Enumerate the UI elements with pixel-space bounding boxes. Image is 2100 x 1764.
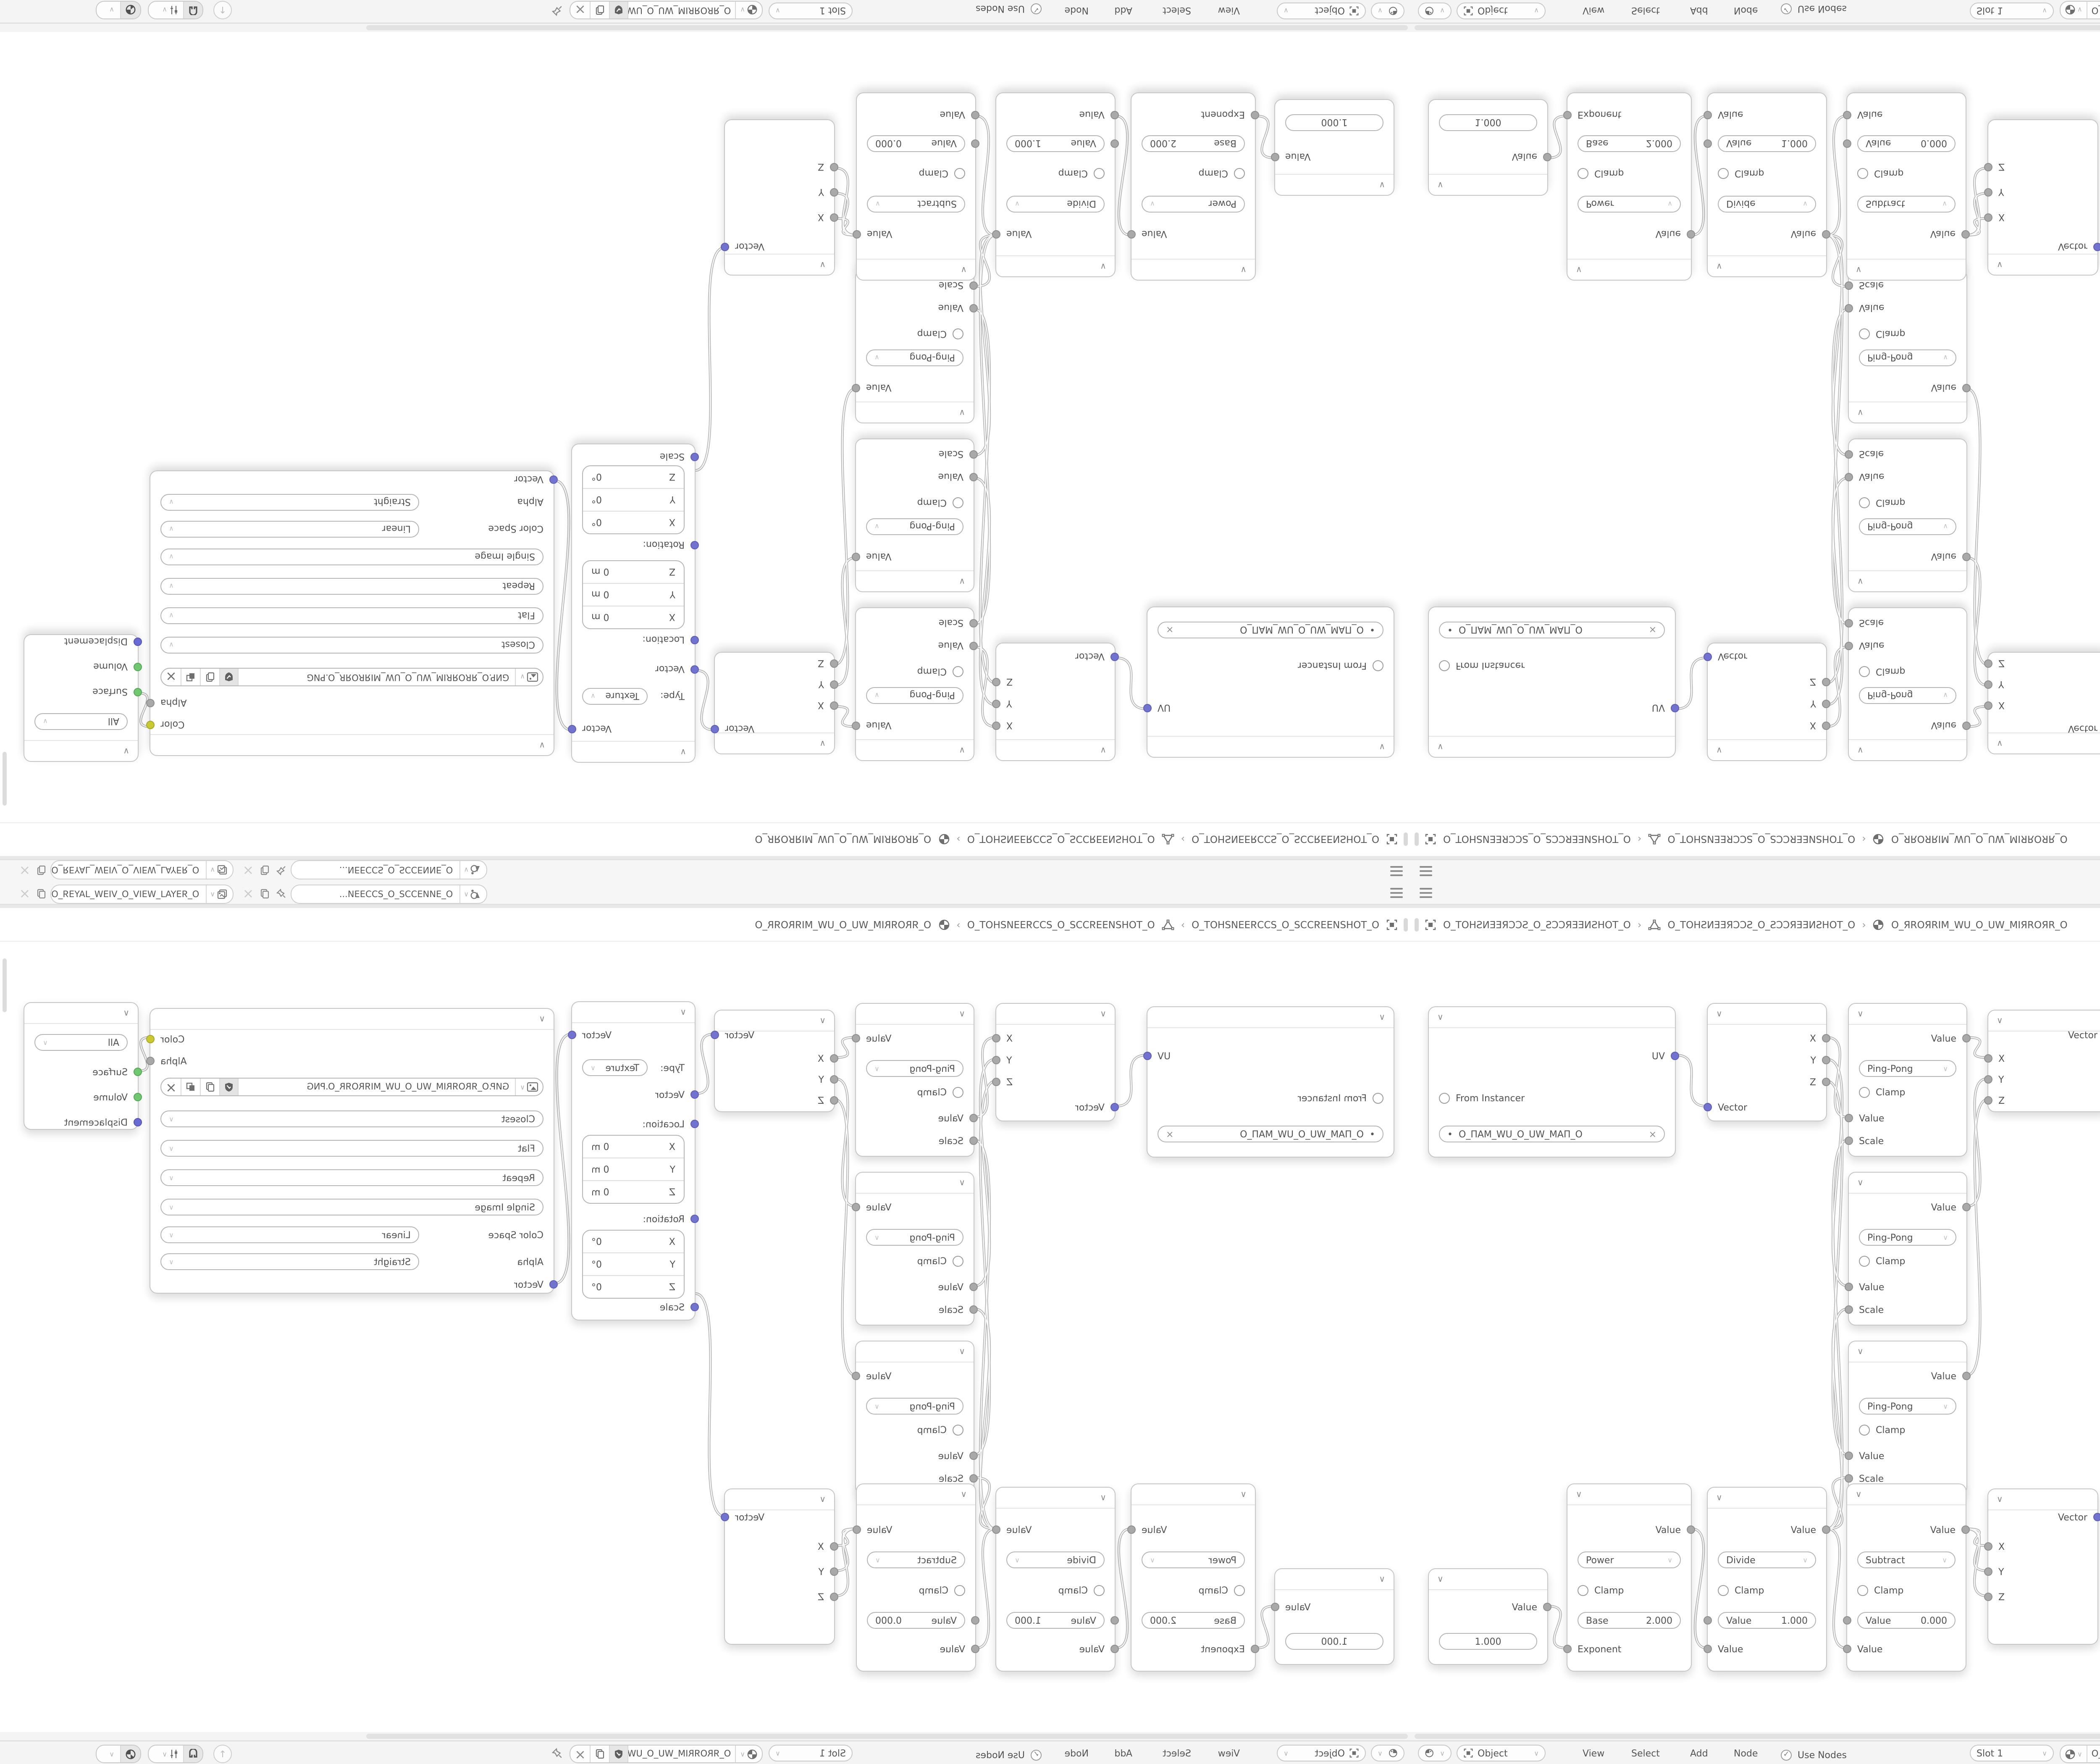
node-separate-xyz[interactable]: ∨ X Y Z Vector (1707, 1003, 1827, 1121)
socket-scale-input[interactable] (1845, 1137, 1853, 1145)
value-field[interactable]: Value0.000 (1857, 135, 1956, 152)
uv-map-name[interactable]: O_ПAM_WU_O_UW_MAП_O (1240, 1129, 1364, 1139)
node-combine-xyz-bottom[interactable]: ∨ Vector X Y Z (724, 119, 835, 276)
node-math-pingpong-3[interactable]: ∨ Value Ping-Pong∨ Clamp Value Scale (855, 270, 974, 423)
clamp-checkbox[interactable]: Clamp (917, 496, 963, 511)
pin-icon[interactable] (275, 864, 289, 878)
checkbox-icon[interactable] (953, 1255, 963, 1266)
copy-icon[interactable] (201, 669, 220, 685)
operation-dropdown[interactable]: Ping-Pong∨ (866, 1229, 963, 1246)
rotation-x-field[interactable]: X0° (583, 1231, 684, 1252)
interpolation-dropdown[interactable]: Closest∨ (160, 637, 543, 654)
clamp-checkbox[interactable]: Clamp (1859, 664, 1905, 680)
fake-user-shield-icon[interactable] (610, 2, 629, 18)
socket-value-output[interactable] (852, 553, 860, 561)
node-material-output[interactable]: ∨ All∨ Surface Volume Displacement (24, 1002, 139, 1130)
operation-dropdown[interactable]: Subtract∨ (867, 1551, 965, 1568)
slot-dropdown[interactable]: Slot 1 ∨ (769, 3, 853, 19)
node-math-pingpong-1[interactable]: ∨ Value Ping-Pong∨ Clamp Value Scale (855, 607, 974, 761)
rotation-xyz-fields[interactable]: X0° Y0° Z0° (582, 1230, 685, 1299)
rotation-x-field[interactable]: X0° (583, 512, 684, 533)
socket-value1-input[interactable] (1704, 1616, 1712, 1625)
alpha-mode-dropdown[interactable]: Straight∨ (160, 1253, 419, 1270)
horizontal-scrollbar-track[interactable] (0, 1732, 1411, 1740)
checkbox-icon[interactable] (1859, 1424, 1870, 1435)
menu-hamburger-icon[interactable] (1390, 888, 1403, 898)
node-math-power[interactable]: ∨ Value Power∨ Clamp Base2.000 Exponent (1567, 1483, 1692, 1672)
location-xyz-fields[interactable]: X0 m Y0 m Z0 m (582, 1135, 685, 1204)
checkbox-icon[interactable] (1578, 168, 1588, 179)
material-datablock-selector[interactable]: ∨ O_ЯROЯRIM_WU_O_UW_MIЯROЯR_O × (570, 1745, 763, 1763)
socket-z-input[interactable] (1984, 659, 1992, 668)
uv-map-name[interactable]: O_ПAM_WU_O_UW_MAП_O (1459, 1129, 1583, 1139)
node-math-divide[interactable]: ∨ Value Divide∨ Clamp Value1.000 Value (1707, 92, 1827, 277)
socket-scale-input[interactable] (1845, 1474, 1853, 1483)
node-collapse-toggle[interactable]: ∨ (1988, 254, 2097, 275)
socket-y-output[interactable] (992, 700, 1000, 708)
checkbox-icon[interactable] (1718, 1585, 1729, 1596)
base-field[interactable]: Base2.000 (1142, 1612, 1245, 1629)
socket-value2-input[interactable] (1843, 111, 1851, 119)
node-combine-xyz-top[interactable]: ∨ Vector X Y Z (1987, 1010, 2100, 1112)
source-dropdown[interactable]: Single Image∨ (160, 549, 543, 565)
clamp-checkbox[interactable]: Clamp (1199, 1583, 1245, 1598)
horizontal-scrollbar-track[interactable] (1411, 1732, 2100, 1740)
rotation-z-field[interactable]: Z0° (583, 466, 684, 489)
checkbox-icon[interactable] (1234, 1585, 1245, 1596)
socket-z-input[interactable] (1984, 1593, 1992, 1601)
socket-value1-input[interactable] (1110, 1616, 1119, 1625)
operation-dropdown[interactable]: Ping-Pong∨ (1859, 687, 1956, 704)
node-collapse-toggle[interactable]: ∨ (856, 402, 974, 423)
node-image-texture[interactable]: ∨ Color Alpha ∨ GИP.O_ЯROЯRIM_WU_O_UW_MI… (150, 470, 554, 756)
editor-type-dropdown[interactable]: ∨ (1371, 3, 1404, 19)
overlays-icon[interactable] (121, 1746, 140, 1762)
breadcrumb-mesh-name[interactable]: O_TOHƧИƎƎЯƆƆƧ_O_ƧƆƆЯƎƎИƧHOT_O (967, 833, 1155, 845)
menu-select[interactable]: Select (1626, 1741, 1665, 1764)
copy-icon[interactable] (34, 864, 49, 878)
socket-value2-input[interactable] (1110, 111, 1119, 119)
operation-dropdown[interactable]: Power∨ (1142, 196, 1245, 213)
socket-y-output[interactable] (1822, 1056, 1830, 1064)
socket-z-input[interactable] (830, 1096, 838, 1105)
socket-rotation-input[interactable] (690, 541, 699, 549)
checkbox-icon[interactable] (1859, 498, 1870, 509)
socket-value-input[interactable] (1845, 1452, 1853, 1460)
socket-value-output[interactable] (1962, 553, 1971, 561)
socket-vector-output[interactable] (711, 725, 719, 733)
clamp-checkbox[interactable]: Clamp (1718, 166, 1764, 181)
socket-value-output[interactable] (1127, 1525, 1136, 1534)
menu-view[interactable]: View (1578, 1741, 1609, 1764)
slot-dropdown[interactable]: Slot 1 ∨ (1970, 3, 2054, 19)
checkbox-icon[interactable]: ✓ (1781, 4, 1792, 15)
socket-value-output[interactable] (1962, 722, 1971, 730)
horizontal-scrollbar[interactable] (1415, 25, 2100, 30)
scene-selector[interactable]: ∨ O_ƎИИƎƆƆƧ_O_ƧƆƆƎƎИ... (291, 885, 487, 904)
node-math-pingpong-3[interactable]: ∨ Value Ping-Pong∨ Clamp Value Scale (1848, 270, 1967, 423)
scene-icon[interactable]: ∨ (459, 885, 486, 903)
checkbox-icon[interactable] (953, 329, 963, 340)
horizontal-scrollbar[interactable] (366, 25, 1408, 30)
value-field[interactable]: Value1.000 (1006, 135, 1105, 152)
socket-y-input[interactable] (830, 680, 838, 689)
socket-value-output[interactable] (1961, 230, 1970, 239)
use-nodes-checkbox[interactable]: ✓ Use Nodes (1781, 1747, 1847, 1762)
node-collapse-toggle[interactable]: ∨ (1131, 1484, 1255, 1505)
clamp-checkbox[interactable]: Clamp (1058, 1583, 1105, 1598)
breadcrumb-mesh-name[interactable]: O_TOHƧИƎƎЯƆƆƧ_O_ƧƆƆЯƎƎИƧHOT_O (1667, 833, 1855, 845)
material-datablock-selector[interactable]: ∨ O_ЯROЯRIM_WU_O_UW_MIЯROЯR_O × (2060, 1745, 2100, 1763)
overlays-dropdown[interactable]: ∨ (105, 1746, 121, 1762)
node-collapse-toggle[interactable]: ∨ (856, 1004, 974, 1025)
fake-user-shield-icon[interactable] (610, 1746, 629, 1762)
color-space-dropdown[interactable]: Linear∨ (160, 521, 419, 538)
material-name[interactable]: O_ЯROЯRIM_WU_O_UW_MIЯROЯR_O (629, 2, 736, 18)
socket-alpha-output[interactable] (146, 1057, 155, 1065)
node-combine-xyz-top[interactable]: ∨ Vector X Y Z (1987, 652, 2100, 754)
use-nodes-checkbox[interactable]: ✓ Use Nodes (1781, 2, 1847, 17)
node-math-divide[interactable]: ∨ Value Divide∨ Clamp Value1.000 Value (995, 1487, 1116, 1672)
type-dropdown[interactable]: Texture∨ (582, 1059, 648, 1076)
checkbox-icon[interactable] (954, 168, 965, 179)
from-instancer-checkbox[interactable]: From Instancer (1298, 659, 1383, 674)
node-collapse-toggle[interactable]: ∨ (572, 1002, 695, 1023)
socket-x-input[interactable] (1984, 1542, 1992, 1551)
socket-value-output[interactable] (1271, 153, 1279, 161)
go-up-button[interactable]: ↑ (213, 1, 232, 19)
operation-dropdown[interactable]: Subtract∨ (1857, 1551, 1956, 1568)
checkbox-icon[interactable] (1234, 168, 1245, 179)
node-uv-map[interactable]: ∨ UV From Instancer • O_ПAM_WU_O_UW_MAП_… (1428, 606, 1676, 758)
checkbox-icon[interactable]: ✓ (1781, 1749, 1792, 1760)
operation-dropdown[interactable]: Ping-Pong∨ (866, 687, 963, 704)
socket-vector-input[interactable] (1704, 653, 1712, 661)
pin-icon[interactable] (275, 886, 289, 900)
rotation-y-field[interactable]: Y0° (583, 489, 684, 512)
copy-icon[interactable] (201, 1079, 220, 1095)
from-instancer-checkbox[interactable]: From Instancer (1439, 659, 1525, 674)
node-math-power[interactable]: ∨ Value Power∨ Clamp Base2.000 Exponent (1131, 1483, 1256, 1672)
socket-exponent-input[interactable] (1251, 111, 1259, 119)
node-combine-xyz-top[interactable]: ∨ Vector X Y Z (714, 652, 835, 754)
socket-z-output[interactable] (1822, 1078, 1830, 1086)
checkbox-icon[interactable]: ✓ (1031, 4, 1042, 15)
checkbox-icon[interactable] (1373, 661, 1383, 672)
socket-y-input[interactable] (830, 1075, 838, 1084)
location-xyz-fields[interactable]: X0 m Y0 m Z0 m (582, 560, 685, 629)
fake-user-shield-icon[interactable] (220, 669, 239, 685)
socket-value2-input[interactable] (1704, 1645, 1712, 1653)
extension-dropdown[interactable]: Repeat∨ (160, 1169, 543, 1186)
socket-displacement-input[interactable] (134, 1118, 142, 1126)
socket-value-input[interactable] (969, 1114, 978, 1122)
unlink-icon[interactable]: × (241, 864, 255, 878)
operation-dropdown[interactable]: Ping-Pong∨ (866, 518, 963, 535)
node-collapse-toggle[interactable]: ∨ (1849, 402, 1966, 423)
horizontal-scrollbar-track[interactable] (1411, 24, 2100, 32)
material-datablock-selector[interactable]: ∨ O_ЯROЯRIM_WU_O_UW_MIЯROЯR_O × (570, 1, 763, 19)
scroll-pill[interactable] (1415, 918, 1419, 932)
image-filename[interactable]: GИP.O_ЯROЯRIM_WU_O_UW_MIЯROЯR_O.PNG (239, 1079, 516, 1095)
node-editor-canvas[interactable]: ∨ UV From Instancer • O_ПAM_WU_O_UW_MAП_… (0, 942, 1411, 1732)
socket-scale-input[interactable] (969, 1137, 978, 1145)
socket-exponent-input[interactable] (1563, 111, 1572, 119)
socket-value2-input[interactable] (1110, 1645, 1119, 1653)
node-uv-map[interactable]: ∨ UV From Instancer • O_ПAM_WU_O_UW_MAП_… (1147, 606, 1394, 758)
node-collapse-toggle[interactable]: ∨ (996, 739, 1115, 760)
checkbox-icon[interactable] (1859, 667, 1870, 677)
socket-value-output[interactable] (852, 1034, 860, 1042)
node-math-subtract[interactable]: ∨ Value Subtract∨ Clamp Value0.000 Value (856, 1483, 976, 1672)
operation-dropdown[interactable]: Power∨ (1142, 1551, 1245, 1568)
clamp-checkbox[interactable]: Clamp (919, 166, 965, 181)
node-collapse-toggle[interactable]: ∨ (1429, 174, 1547, 195)
socket-x-input[interactable] (1984, 213, 1992, 222)
checkbox-icon[interactable] (1859, 1087, 1870, 1097)
node-collapse-toggle[interactable]: ∨ (1849, 570, 1966, 591)
socket-z-output[interactable] (1822, 678, 1830, 686)
node-separate-xyz[interactable]: ∨ X Y Z Vector (995, 1003, 1116, 1121)
checkbox-icon[interactable] (1578, 1585, 1588, 1596)
socket-scale-input[interactable] (969, 619, 978, 627)
menu-select[interactable]: Select (1626, 0, 1665, 23)
node-math-subtract[interactable]: ∨ Value Subtract∨ Clamp Value0.000 Value (856, 92, 976, 281)
menu-node[interactable]: Node (1729, 1741, 1763, 1764)
node-separate-xyz[interactable]: ∨ X Y Z Vector (995, 643, 1116, 761)
horizontal-scrollbar[interactable] (366, 1734, 1408, 1739)
uv-map-name-field[interactable]: • O_ПAM_WU_O_UW_MAП_O × (1439, 622, 1665, 638)
value-field[interactable]: Value1.000 (1718, 135, 1816, 152)
socket-y-input[interactable] (1984, 188, 1992, 197)
clamp-checkbox[interactable]: Clamp (1578, 1583, 1624, 1598)
socket-scale-input[interactable] (1845, 619, 1853, 627)
socket-value-output[interactable] (1962, 1034, 1971, 1042)
node-math-pingpong-3[interactable]: ∨ Value Ping-Pong∨ Clamp Value Scale (855, 1341, 974, 1494)
interpolation-dropdown[interactable]: Closest∨ (160, 1110, 543, 1127)
checkbox-icon[interactable] (1439, 1092, 1450, 1103)
material-browse-icon[interactable]: ∨ (2061, 1746, 2087, 1762)
material-browse-icon[interactable]: ∨ (736, 1746, 762, 1762)
overlays-icon[interactable] (121, 2, 140, 18)
location-x-field[interactable]: X0 m (583, 606, 684, 628)
clamp-checkbox[interactable]: Clamp (917, 664, 963, 680)
location-y-field[interactable]: Y0 m (583, 1158, 684, 1180)
menu-node[interactable]: Node (1060, 1741, 1094, 1764)
operation-dropdown[interactable]: Power∨ (1578, 196, 1681, 213)
node-collapse-toggle[interactable]: ∨ (24, 740, 138, 761)
operation-dropdown[interactable]: Ping-Pong∨ (866, 1060, 963, 1077)
breadcrumb-material-name[interactable]: O_ЯROЯRIM_WU_O_UW_MIЯROЯR_O (1891, 833, 2068, 845)
socket-exponent-input[interactable] (1251, 1645, 1259, 1653)
checkbox-icon[interactable] (1859, 329, 1870, 340)
slot-dropdown[interactable]: Slot 1 ∨ (769, 1745, 853, 1761)
socket-vector-output[interactable] (2093, 1513, 2100, 1521)
menu-node[interactable]: Node (1060, 0, 1094, 23)
unlink-icon[interactable]: × (570, 1746, 591, 1762)
overlays-controls[interactable]: ∨ (96, 1, 141, 19)
image-browse-icon[interactable]: ∨ (516, 669, 543, 685)
socket-value-output[interactable] (852, 722, 860, 730)
clamp-checkbox[interactable]: Clamp (917, 1084, 963, 1100)
checkbox-icon[interactable] (953, 1087, 963, 1097)
socket-volume-input[interactable] (134, 1093, 142, 1101)
socket-x-input[interactable] (830, 1054, 838, 1063)
rotation-y-field[interactable]: Y0° (583, 1252, 684, 1275)
snap-settings-icon[interactable]: ∨ (158, 2, 184, 18)
socket-value-output[interactable] (853, 230, 861, 239)
unlink-icon[interactable]: × (18, 886, 32, 900)
node-math-divide[interactable]: ∨ Value Divide∨ Clamp Value1.000 Value (1707, 1487, 1827, 1672)
view-layer-icon[interactable]: ∨ (206, 861, 233, 879)
node-combine-xyz-top[interactable]: ∨ Vector X Y Z (714, 1010, 835, 1112)
operation-dropdown[interactable]: Ping-Pong∨ (866, 1398, 963, 1415)
shader-type-dropdown[interactable]: Object ∨ (1457, 3, 1546, 19)
checkbox-icon[interactable] (1094, 1585, 1105, 1596)
snap-controls[interactable]: ∨ (148, 1745, 203, 1763)
socket-value-output[interactable] (1543, 1603, 1551, 1611)
material-name[interactable]: O_ЯROЯRIM_WU_O_UW_MIЯROЯR_O (629, 1746, 736, 1762)
operation-dropdown[interactable]: Ping-Pong∨ (1859, 518, 1956, 535)
operation-dropdown[interactable]: Subtract∨ (867, 196, 965, 213)
clamp-checkbox[interactable]: Clamp (917, 327, 963, 342)
socket-value-input[interactable] (1845, 642, 1853, 650)
node-math-power[interactable]: ∨ Value Power∨ Clamp Base2.000 Exponent (1567, 92, 1692, 281)
socket-value-input[interactable] (1845, 473, 1853, 481)
node-math-pingpong-2[interactable]: ∨ Value Ping-Pong∨ Clamp Value Scale (855, 1172, 974, 1326)
socket-value2-input[interactable] (1843, 1645, 1851, 1653)
clamp-checkbox[interactable]: Clamp (1578, 166, 1624, 181)
node-mapping[interactable]: ∨ Vector Type: Texture∨ Vector Location:… (571, 1001, 696, 1320)
socket-vector-input[interactable] (690, 1090, 699, 1099)
unlink-icon[interactable]: × (18, 864, 32, 878)
checkbox-icon[interactable] (953, 1424, 963, 1435)
node-collapse-toggle[interactable]: ∨ (857, 259, 975, 280)
socket-x-input[interactable] (1984, 1054, 1992, 1063)
from-instancer-checkbox[interactable]: From Instancer (1298, 1090, 1383, 1105)
checkbox-icon[interactable]: ✓ (1031, 1749, 1042, 1760)
material-datablock-selector[interactable]: ∨ O_ЯROЯRIM_WU_O_UW_MIЯROЯR_O × (2060, 1, 2100, 19)
menu-node[interactable]: Node (1729, 0, 1763, 23)
socket-value-input[interactable] (969, 304, 978, 312)
node-collapse-toggle[interactable]: ∨ (1849, 1341, 1966, 1362)
socket-value2-input[interactable] (971, 1645, 979, 1653)
overlays-controls[interactable]: ∨ (96, 1745, 141, 1763)
socket-x-output[interactable] (1822, 1034, 1830, 1042)
socket-vector-output[interactable] (711, 1031, 719, 1039)
socket-value-input[interactable] (969, 1452, 978, 1460)
from-instancer-checkbox[interactable]: From Instancer (1439, 1090, 1525, 1105)
node-math-subtract[interactable]: ∨ Value Subtract∨ Clamp Value0.000 Value (1846, 1483, 1966, 1672)
checkbox-icon[interactable] (954, 1585, 965, 1596)
socket-value1-input[interactable] (1110, 139, 1119, 148)
operation-dropdown[interactable]: Ping-Pong∨ (1859, 349, 1956, 366)
socket-vector-input[interactable] (1110, 653, 1119, 661)
node-collapse-toggle[interactable]: ∨ (1849, 739, 1966, 760)
socket-scale-input[interactable] (969, 1474, 978, 1483)
socket-value-input[interactable] (969, 1283, 978, 1291)
clamp-checkbox[interactable]: Clamp (1859, 1253, 1905, 1268)
socket-y-input[interactable] (1984, 680, 1992, 689)
view-layer-selector[interactable]: ∨ O_ЯƎYA⅃_WƎIV_O_VIƎW_⅃AYƎЯ_O (50, 885, 234, 904)
checkbox-icon[interactable] (953, 667, 963, 677)
socket-x-output[interactable] (1822, 722, 1830, 730)
snap-magnet-icon[interactable] (184, 1746, 202, 1762)
socket-surface-input[interactable] (134, 688, 142, 696)
alpha-mode-dropdown[interactable]: Straight∨ (160, 494, 419, 511)
breadcrumb-material-name[interactable]: O_ЯROЯRIM_WU_O_UW_MIЯROЯR_O (755, 919, 931, 931)
node-math-pingpong-2[interactable]: ∨ Value Ping-Pong∨ Clamp Value Scale (1848, 438, 1967, 592)
value-field[interactable]: Value0.000 (867, 135, 965, 152)
menu-view[interactable]: View (1213, 1741, 1245, 1764)
checkbox-icon[interactable] (1094, 168, 1105, 179)
clear-icon[interactable]: × (1166, 1129, 1173, 1139)
unlink-icon[interactable]: × (161, 669, 182, 685)
pin-icon[interactable] (550, 1746, 564, 1761)
socket-z-input[interactable] (1984, 163, 1992, 171)
node-combine-xyz-bottom[interactable]: ∨ Vector X Y Z (1987, 119, 2098, 276)
copy-icon[interactable] (591, 1746, 610, 1762)
clamp-checkbox[interactable]: Clamp (1859, 1084, 1905, 1100)
checkbox-icon[interactable] (1859, 1255, 1870, 1266)
node-math-divide[interactable]: ∨ Value Divide∨ Clamp Value1.000 Value (995, 92, 1116, 277)
node-value[interactable]: ∨ Value 1.000 (1274, 1568, 1394, 1665)
socket-value-input[interactable] (1845, 304, 1853, 312)
node-math-pingpong-1[interactable]: ∨ Value Ping-Pong∨ Clamp Value Scale (855, 1003, 974, 1157)
node-collapse-toggle[interactable]: ∨ (1275, 174, 1394, 195)
checkbox-icon[interactable] (1718, 168, 1729, 179)
operation-dropdown[interactable]: Power∨ (1578, 1551, 1681, 1568)
operation-dropdown[interactable]: Divide∨ (1718, 1551, 1816, 1568)
socket-vector-input[interactable] (1110, 1103, 1119, 1111)
node-collapse-toggle[interactable]: ∨ (1275, 1569, 1394, 1590)
socket-location-input[interactable] (690, 1120, 699, 1128)
copy-icon[interactable] (258, 886, 272, 900)
socket-x-input[interactable] (830, 213, 838, 222)
uv-map-name-field[interactable]: • O_ПAM_WU_O_UW_MAП_O × (1158, 1126, 1383, 1142)
editor-type-dropdown[interactable]: ∨ (1418, 1745, 1452, 1761)
node-collapse-toggle[interactable]: ∨ (150, 1009, 554, 1030)
scroll-pill[interactable] (1415, 832, 1419, 846)
node-mapping[interactable]: ∨ Vector Type: Texture∨ Vector Location:… (571, 444, 696, 763)
image-datablock-selector[interactable]: ∨ GИP.O_ЯROЯRIM_WU_O_UW_MIЯROЯR_O.PNG × (160, 1078, 543, 1096)
material-browse-icon[interactable]: ∨ (736, 2, 762, 18)
location-y-field[interactable]: Y0 m (583, 584, 684, 606)
node-editor-canvas[interactable]: ∨ UV From Instancer • O_ПAM_WU_O_UW_MAП_… (1411, 32, 2100, 822)
menu-add[interactable]: Add (1109, 1741, 1137, 1764)
menu-view[interactable]: View (1213, 0, 1245, 23)
socket-value-output[interactable] (1962, 1372, 1971, 1380)
node-collapse-toggle[interactable]: ∨ (1988, 1489, 2097, 1510)
pack-icon[interactable] (182, 669, 201, 685)
socket-value2-input[interactable] (971, 111, 979, 119)
uv-map-name-field[interactable]: • O_ПAM_WU_O_UW_MAП_O × (1439, 1126, 1665, 1142)
node-value[interactable]: ∨ Value 1.000 (1274, 99, 1394, 196)
target-dropdown[interactable]: All∨ (34, 1034, 128, 1051)
socket-scale-input[interactable] (690, 1303, 699, 1311)
socket-value1-input[interactable] (971, 1616, 979, 1625)
shader-type-dropdown[interactable]: Object ∨ (1277, 1745, 1366, 1761)
socket-uv-output[interactable] (1671, 704, 1679, 712)
node-editor-canvas[interactable]: ∨ UV From Instancer • O_ПAM_WU_O_UW_MAП_… (1411, 942, 2100, 1732)
menu-add[interactable]: Add (1109, 0, 1137, 23)
node-collapse-toggle[interactable]: ∨ (1708, 1488, 1826, 1509)
checkbox-icon[interactable] (1857, 1585, 1868, 1596)
node-uv-map[interactable]: ∨ UV From Instancer • O_ПAM_WU_O_UW_MAП_… (1428, 1006, 1676, 1158)
value-field[interactable]: Value1.000 (1718, 1612, 1816, 1629)
socket-vector-output[interactable] (721, 243, 729, 251)
socket-scale-input[interactable] (969, 281, 978, 290)
